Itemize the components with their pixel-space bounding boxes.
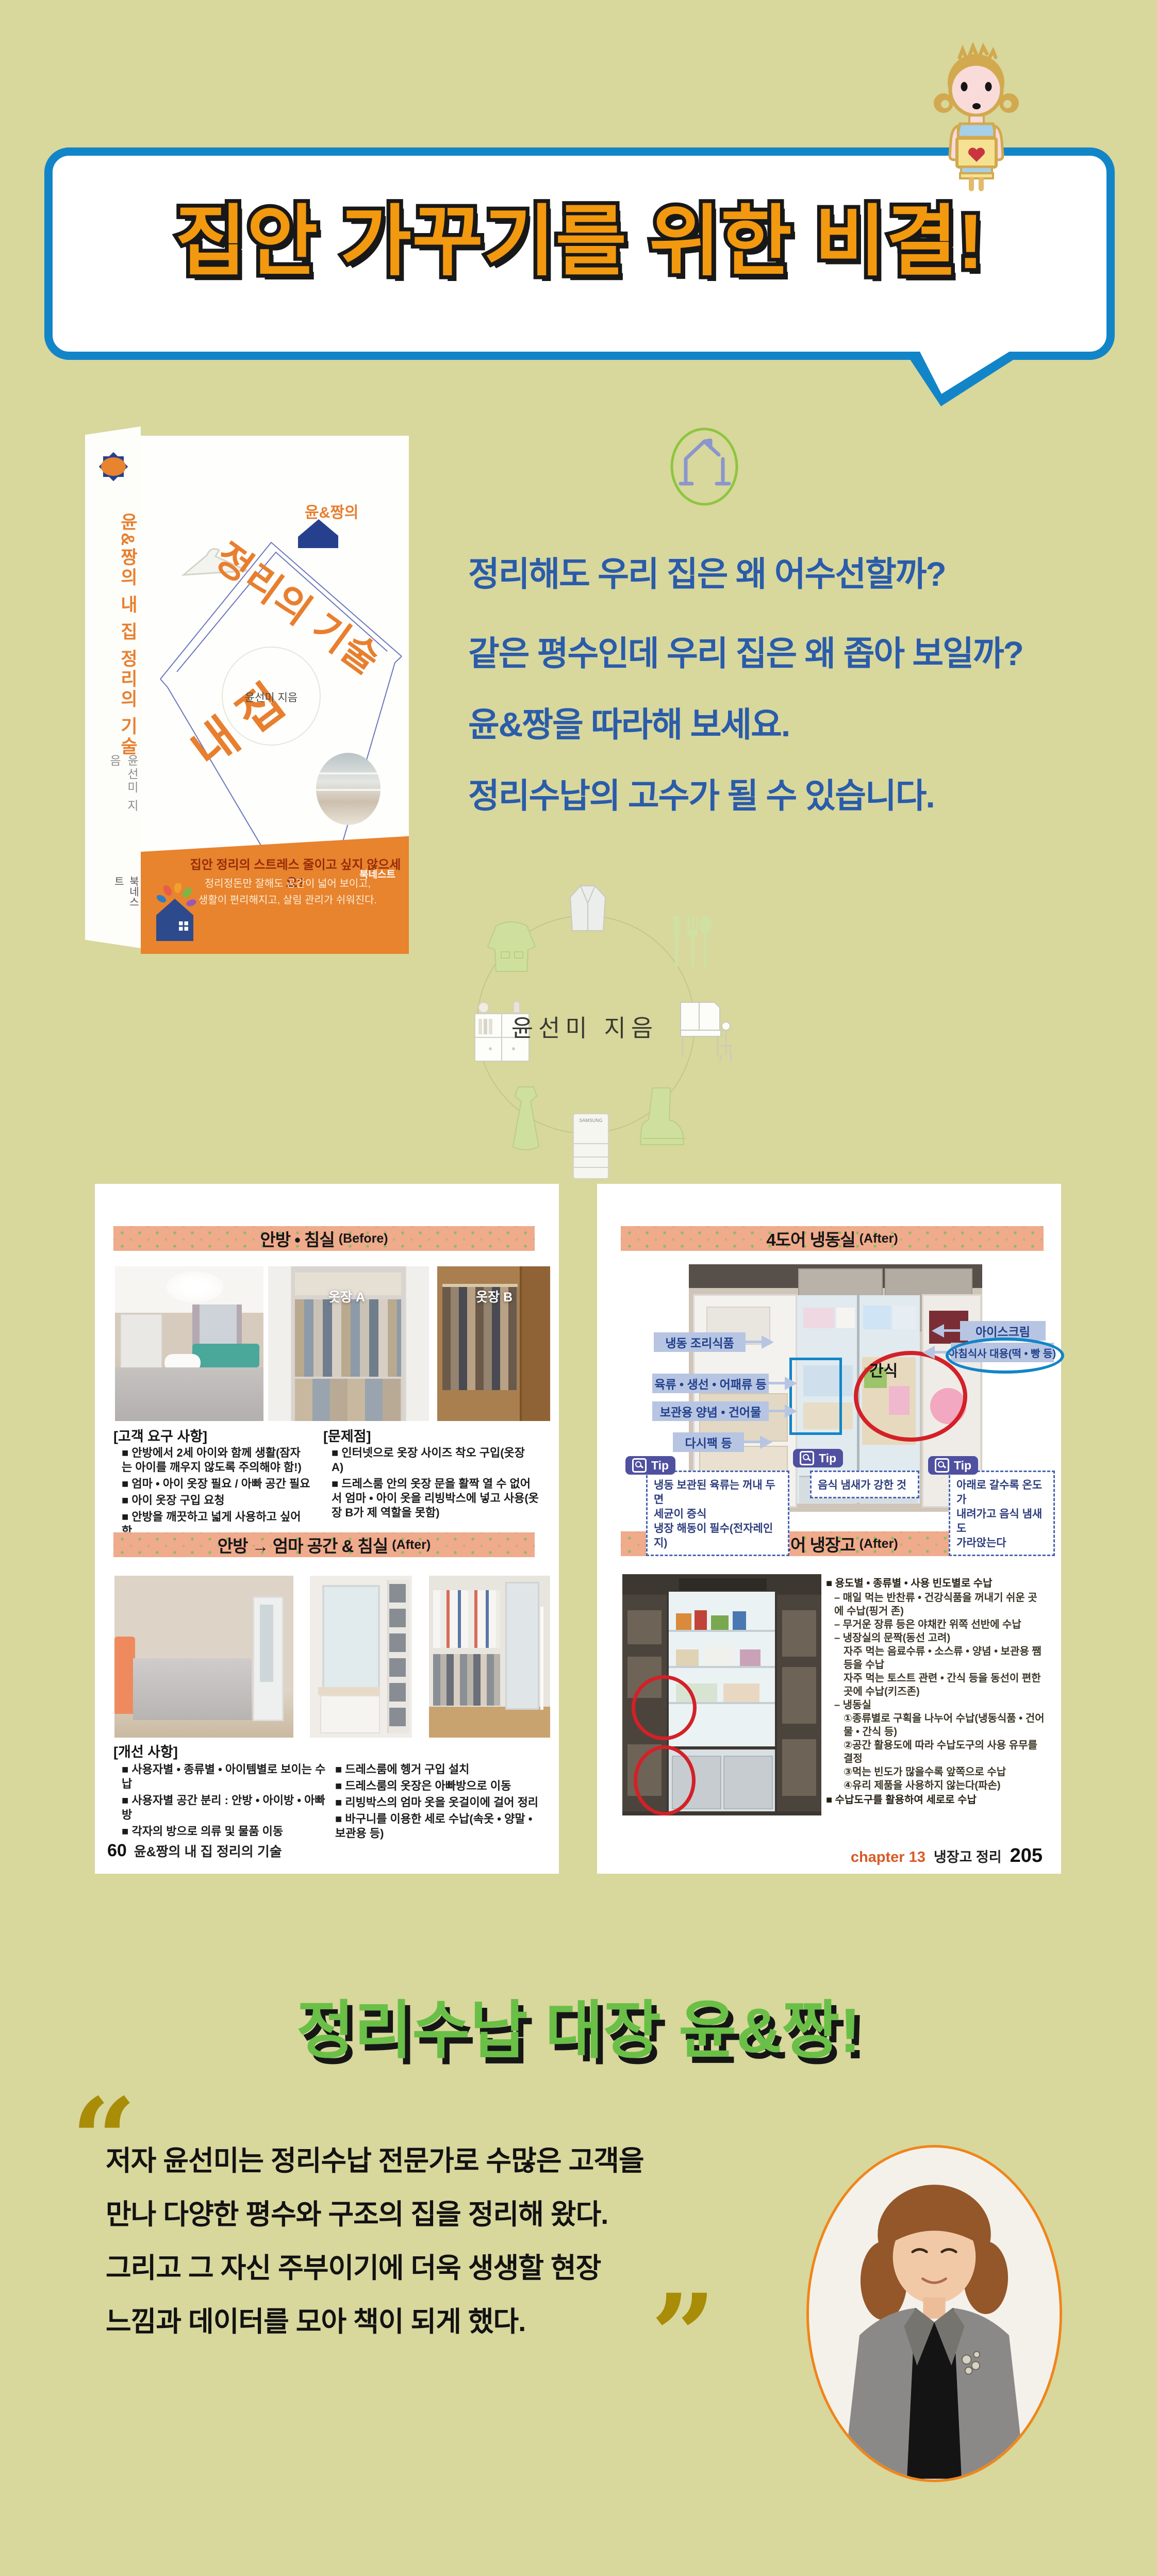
photo-detail [295,1379,401,1421]
intro-line: 정리해도 우리 집은 왜 어수선할까? [468,547,946,596]
photo-detail [429,1707,550,1738]
spine-publisher: 북네스트 [85,876,141,912]
callout-broth-pack: 다시팩 등 [673,1432,744,1452]
author-portrait-illustration [809,2148,1060,2480]
section-header-before: 안방 • 침실(Before) [113,1226,535,1251]
photo-detail [705,1646,735,1666]
list-item: – 냉장실의 문짝(동선 고려) [826,1631,1045,1645]
improvements-col2: ■ 드레스룸에 헹거 구입 설치 ■ 드레스룸의 옷장은 아빠방으로 이동 ■ … [335,1762,541,1843]
footer-page-number: 60 [107,1841,127,1861]
section-title: 안방 • 침실 [260,1226,334,1251]
requirements-list: ■ 안방에서 2세 아이와 함께 생활(잠자는 아이를 깨우지 않도록 주의해야… [122,1446,310,1541]
photo-detail [740,1649,761,1666]
photo-detail [114,1637,135,1714]
tip-box-smell: 음식 냄새가 강한 것 [810,1471,919,1498]
blazer-icon [565,882,610,933]
cover-band-line3: 생활이 편리해지고, 살림 관리가 쉬워진다. [190,891,386,906]
sample-page-before-after: 안방 • 침실(Before) 옷장 A 옷장 B [고객 요구 사항] ■ 안… [95,1184,559,1874]
photo-detail [836,1308,855,1328]
list-item: ■ 아이 옷장 구입 요청 [122,1493,310,1508]
photo-detail [520,1266,550,1421]
cover-band-publisher: 북네스트 [359,867,395,881]
photo-detail [782,1739,816,1796]
list-item: ■ 용도별 • 종류별 • 사용 빈도별로 수납 [826,1577,1045,1590]
section-suffix: (Before) [339,1231,388,1246]
quote-line: 저자 윤선미는 정리수납 전문가로 수많은 고객을 [106,2138,644,2178]
list-item: ③먹는 빈도가 많을수록 앞쪽으로 수납 [826,1765,1045,1779]
photo-detail [433,1590,500,1648]
quote-line: 느낌과 데이터를 모아 책이 되게 했다. [106,2299,525,2339]
photo-detail [316,789,381,791]
cover-orange-band: 집안 정리의 스트레스 줄이고 싶지 않으세요? 정리정돈만 잘해도 공간이 넓… [141,834,409,954]
photo-detail [268,1266,292,1421]
magnifier-icon [800,1451,814,1465]
list-item: ■ 바구니를 이용한 세로 수납(속옷 • 양말 • 보관용 등) [335,1812,541,1841]
list-item: ■ 각자의 방으로 의류 및 물품 이동 [122,1824,329,1839]
photo-detail [320,1695,380,1733]
callout-meat-fish: 육류 • 생선 • 어패류 등 [652,1374,769,1393]
list-item: ②공간 활용도에 따라 수납도구의 사용 유무를 결정 [826,1739,1045,1765]
author-photo [806,2145,1062,2482]
section-header-freezer: 4도어 냉동실(After) [621,1226,1044,1251]
photo-detail [405,1266,429,1421]
photo-detail [723,1756,773,1809]
photo-detail [676,1649,699,1666]
list-item: ■ 사용자별 • 종류별 • 아이템별로 보이는 수납 [122,1762,329,1791]
photo-bedroom-before [115,1266,263,1421]
magnifier-icon [935,1458,949,1473]
snack-annotation: 간식 [869,1358,898,1381]
photo-detail [711,1615,729,1630]
speech-bubble-tail [897,350,1036,407]
cover-band-line2: 정리정돈만 잘해도 공간이 넓어 보이고, [190,875,386,890]
improvements-col1: ■ 사용자별 • 종류별 • 아이템별로 보이는 수납 ■ 사용자별 공간 분리… [122,1762,329,1841]
tip-label: Tip [819,1451,836,1465]
section-header-after: 안방 → 엄마 공간 & 침실(After) [113,1532,535,1557]
list-item: ①종류별로 구획을 나누어 수납(냉동식품 • 건어물 • 간식 등) [826,1712,1045,1739]
tip-box-meat: 냉동 보관된 육류는 꺼내 두면 세균이 증식 냉장 해동이 필수(전자레인지) [646,1471,789,1556]
photo-detail [167,1272,223,1302]
boot-icon [637,1085,686,1149]
photo-detail [295,1299,401,1377]
list-item: ■ 엄마 • 아이 옷장 필요 / 아빠 공간 필요 [122,1477,310,1491]
list-item: ■ 드레스룸의 옷장은 아빠방으로 이동 [335,1779,541,1793]
photo-detail [316,772,381,774]
cutlery-icon [669,912,713,971]
tip-badge: Tip [793,1449,843,1467]
section-title: 안방 → 엄마 공간 & 침실 [218,1532,388,1557]
author-credit: 윤선미 지음 [476,1010,693,1044]
photo-detail [627,1610,662,1644]
photo-detail [863,1306,891,1329]
photo-detail [669,1630,775,1632]
list-item: ■ 드레스룸에 헹거 구입 설치 [335,1762,541,1777]
footer-chapter: chapter 13 [851,1849,925,1866]
outro-title: 정리수납 대장 윤&짱! 정리수납 대장 윤&짱! [0,1991,1157,2070]
footer-chapter-title: 냉장고 정리 [934,1846,1002,1866]
photo-dressroom-after [429,1576,550,1738]
list-item: ■ 인터넷으로 옷장 사이즈 착오 구입(옷장 A) [332,1446,540,1475]
tip-badge: Tip [625,1456,675,1475]
quote-line: 만나 다양한 평수와 구조의 집을 정리해 왔다. [106,2191,608,2232]
photo-detail [893,1306,916,1329]
list-item: ④유리 제품을 사용하지 않는다(파손) [826,1779,1045,1792]
problems-list: ■ 인터넷으로 옷장 사이즈 착오 구입(옷장 A) ■ 드레스룸 안의 옷장 … [332,1446,540,1522]
tip-label: Tip [651,1459,669,1473]
list-item: 자주 먹는 음료수류 • 소스류 • 양념 • 보관용 쨈 등을 수납 [826,1645,1045,1672]
photo-detail [322,1585,380,1690]
callout-frozen-food: 냉동 조리식품 [654,1332,746,1352]
photo-detail [115,1367,263,1421]
fridge-bullet-list: ■ 용도별 • 종류별 • 사용 빈도별로 수납 – 매일 먹는 반찬류 • 건… [826,1576,1045,1808]
list-item: – 매일 먹는 반찬류 • 건강식품을 꺼내기 쉬운 곳에 수납(핑거 존) [826,1591,1045,1618]
cover-kitchen-photo [316,753,381,825]
page-footer: chapter 13 냉장고 정리 205 [851,1845,1043,1867]
quote-line: 그리고 그 자신 주부이기에 더욱 생생할 현장 [106,2245,601,2286]
improvements-title: [개선 사항] [113,1741,178,1761]
photo-vanity-after [310,1576,412,1738]
tip-box-temperature: 아래로 갈수록 온도가 내려가고 음식 냄새도 가라앉는다 [949,1471,1055,1556]
slogan-banner: 집안 가꾸기를 위한 비결! 집안 가꾸기를 위한 비결! [44,199,1115,284]
photo-detail [669,1666,775,1668]
spine-author: 윤선미 지음 [85,754,141,816]
list-item: ■ 안방에서 2세 아이와 함께 생활(잠자는 아이를 깨우지 않도록 주의해야… [122,1446,310,1475]
sun-icon [94,450,133,483]
photo-detail [782,1667,816,1724]
list-item: ■ 리빙박스의 엄마 옷을 옷걸이에 걸어 정리 [335,1795,541,1810]
photo-label-closet-a: 옷장 A [328,1287,365,1306]
photo-detail [733,1611,746,1630]
section-suffix: (After) [860,1231,898,1246]
photo-detail [260,1605,273,1682]
photo-detail [133,1658,252,1720]
house-outline-icon [668,426,740,507]
photo-detail [679,1578,767,1591]
slogan-text: 집안 가꾸기를 위한 비결! [175,198,984,285]
callout-seasoning: 보관용 양념 • 건어물 [652,1401,769,1421]
sample-page-fridge: 4도어 냉동실(After) [597,1184,1061,1874]
freezer-zone-highlight [789,1358,842,1435]
book-promo-page: 집안 가꾸기를 위한 비결! 집안 가꾸기를 위한 비결! 윤&짱의 내 집 정… [0,0,1157,2576]
refrigerator-icon: SAMSUNG [570,1112,611,1181]
list-item: 자주 먹는 토스트 관련 • 간식 등을 동선이 편한 곳에 수납(키즈존) [826,1672,1045,1698]
photo-detail [782,1610,816,1657]
intro-line: 정리수납의 고수가 될 수 있습니다. [468,768,934,818]
fridge-highlight-circle [634,1745,696,1815]
outro-title-text: 정리수납 대장 윤&짱! [296,1995,861,2066]
photo-detail [540,1607,543,1710]
photo-fridge-open [622,1574,821,1815]
photo-bedroom-after [114,1576,293,1738]
intro-line: 같은 평수인데 우리 집은 왜 좁아 보일까? [468,626,1023,675]
list-item: ■ 사용자별 공간 분리 : 안방 • 아이방 • 아빠방 [122,1793,329,1822]
photo-detail [192,1344,259,1367]
book-cover: 윤&짱의 정리의 기술 내 집 윤선미 지음 집안 정리의 스트레스 줄이고 싶… [141,436,409,954]
spine-title: 윤&짱의 내 집 정리의 기술 [85,490,141,779]
svg-text:SAMSUNG: SAMSUNG [579,1118,603,1123]
section-title: 4도어 냉동실 [766,1226,855,1251]
section-suffix: (After) [392,1538,431,1553]
photo-detail [676,1613,691,1630]
magnifier-icon [632,1458,647,1473]
photo-detail [505,1582,539,1710]
tip-badge: Tip [928,1456,978,1475]
cover-author: 윤선미 지음 [216,689,327,705]
close-quote-icon: ” [651,2279,716,2392]
breakfast-highlight-oval [946,1337,1064,1374]
jacket-icon [486,916,537,975]
photo-detail [803,1308,834,1328]
dress-icon [503,1083,549,1152]
photo-detail [318,1687,380,1695]
list-item: ■ 수납도구를 활용하여 세로로 수납 [826,1793,1045,1807]
baby-doll-icon [931,42,1021,192]
list-item: – 냉동실 [826,1698,1045,1712]
section-suffix: (After) [860,1537,898,1551]
problems-title: [문제점] [323,1425,371,1445]
footer-page-number: 205 [1010,1845,1043,1867]
photo-label-closet-b: 옷장 B [476,1287,513,1306]
list-item: ■ 드레스룸 안의 옷장 문을 활짝 열 수 없어서 엄마 • 아이 옷을 리빙… [332,1477,540,1520]
photo-detail [433,1654,500,1706]
photo-detail [695,1610,707,1630]
tip-label: Tip [954,1459,971,1473]
house-logo-icon [152,883,196,944]
roof-mark-icon [297,518,339,550]
book-spine: 윤&짱의 내 집 정리의 기술 윤선미 지음 북네스트 [85,426,141,948]
requirements-title: [고객 요구 사항] [113,1425,207,1445]
photo-detail [389,1584,406,1729]
footer-book-title: 윤&짱의 내 집 정리의 기술 [134,1841,282,1860]
photo-detail [723,1683,759,1702]
intro-line: 윤&짱을 따라해 보세요. [468,697,789,747]
fridge-highlight-circle [632,1675,697,1740]
list-item: – 무거운 장류 등은 야채칸 위쪽 선반에 수납 [826,1618,1045,1631]
page-footer: 60 윤&짱의 내 집 정리의 기술 [107,1841,282,1861]
